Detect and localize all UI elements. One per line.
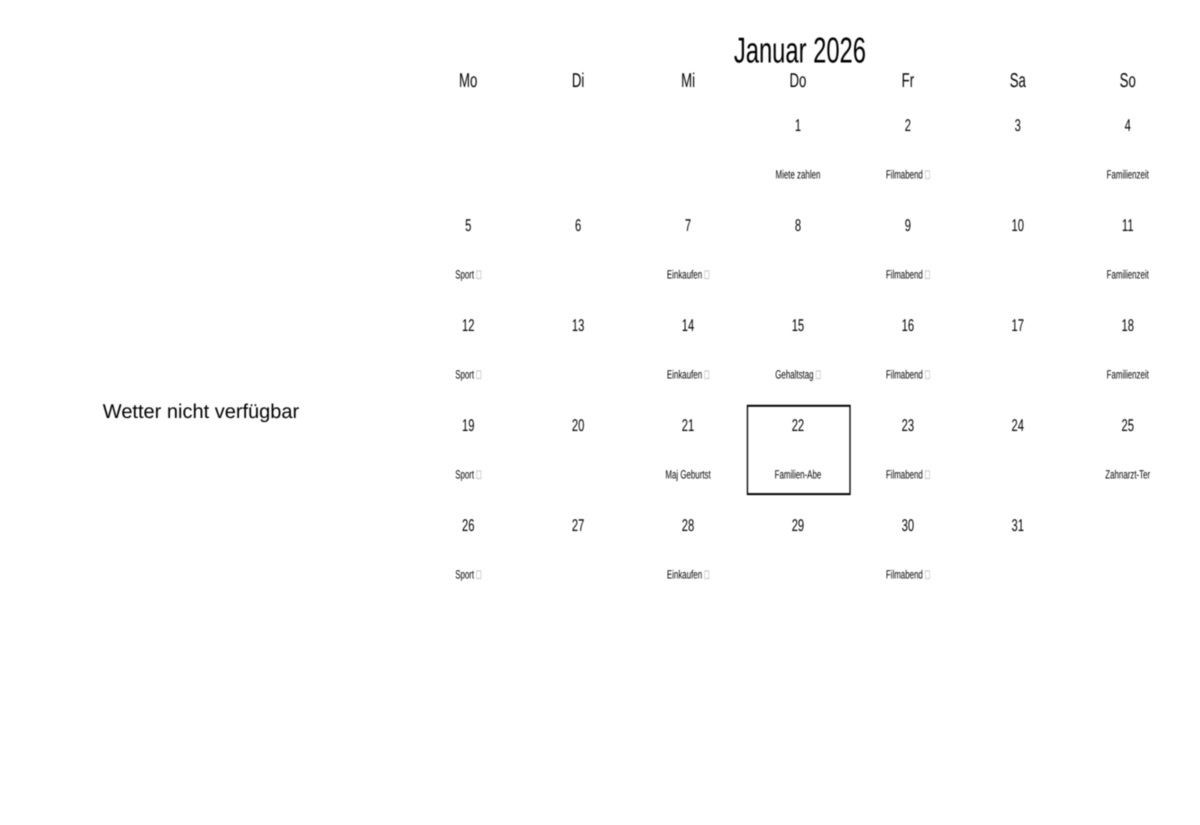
svg-text:9: 9: [905, 216, 911, 235]
svg-text:27: 27: [572, 516, 584, 535]
svg-text:Filmabend: Filmabend: [886, 168, 923, 182]
svg-text:24: 24: [1012, 416, 1024, 435]
svg-text:Sa: Sa: [1010, 70, 1027, 92]
svg-text:Einkaufen: Einkaufen: [667, 268, 702, 282]
svg-text:Sport: Sport: [455, 268, 474, 282]
svg-text:17: 17: [1012, 316, 1024, 335]
svg-text:Familienzeit: Familienzeit: [1107, 368, 1150, 382]
svg-text:Filmabend: Filmabend: [886, 568, 923, 582]
svg-text:Einkaufen: Einkaufen: [667, 568, 702, 582]
svg-text:Filmabend: Filmabend: [886, 468, 923, 482]
svg-text:Familien-Abe: Familien-Abe: [775, 468, 822, 482]
svg-text:26: 26: [462, 516, 474, 535]
svg-text:Filmabend: Filmabend: [886, 368, 923, 382]
svg-text:21: 21: [682, 416, 694, 435]
svg-text:20: 20: [572, 416, 584, 435]
svg-text:4: 4: [1125, 116, 1131, 135]
svg-text:14: 14: [682, 316, 694, 335]
svg-text:13: 13: [572, 316, 584, 335]
svg-text:Sport: Sport: [455, 368, 474, 382]
svg-text:29: 29: [792, 516, 804, 535]
svg-text:10: 10: [1012, 216, 1024, 235]
svg-text:16: 16: [902, 316, 914, 335]
svg-text:Mo: Mo: [459, 70, 477, 92]
svg-text:Familienzeit: Familienzeit: [1107, 168, 1150, 182]
svg-text:28: 28: [682, 516, 694, 535]
svg-text:15: 15: [792, 316, 804, 335]
svg-text:31: 31: [1012, 516, 1024, 535]
svg-text:30: 30: [902, 516, 914, 535]
svg-text:11: 11: [1122, 216, 1134, 235]
svg-text:Di: Di: [572, 70, 584, 92]
svg-text:18: 18: [1121, 316, 1133, 335]
svg-text:Gehaltstag: Gehaltstag: [775, 368, 813, 382]
svg-text:Maj Geburtst: Maj Geburtst: [665, 468, 711, 482]
svg-text:Sport: Sport: [455, 468, 474, 482]
svg-text:3: 3: [1015, 116, 1021, 135]
svg-text:8: 8: [795, 216, 801, 235]
svg-text:Einkaufen: Einkaufen: [667, 368, 702, 382]
svg-text:Zahnarzt-Ter: Zahnarzt-Ter: [1105, 468, 1150, 482]
svg-text:Wetter nicht verfügbar: Wetter nicht verfügbar: [103, 401, 300, 423]
svg-text:So: So: [1120, 70, 1136, 92]
svg-text:25: 25: [1121, 416, 1133, 435]
svg-text:6: 6: [575, 216, 581, 235]
svg-text:Miete zahlen: Miete zahlen: [775, 168, 820, 182]
svg-text:22: 22: [792, 416, 804, 435]
svg-text:Filmabend: Filmabend: [886, 268, 923, 282]
svg-text:7: 7: [685, 216, 691, 235]
svg-text:5: 5: [465, 216, 471, 235]
svg-text:1: 1: [795, 116, 801, 135]
svg-text:Januar 2026: Januar 2026: [734, 30, 866, 71]
svg-text:12: 12: [462, 316, 474, 335]
svg-text:2: 2: [905, 116, 911, 135]
svg-text:19: 19: [462, 416, 474, 435]
svg-text:Fr: Fr: [902, 70, 915, 92]
svg-text:Mi: Mi: [681, 70, 695, 92]
svg-text:23: 23: [902, 416, 914, 435]
svg-text:Sport: Sport: [455, 568, 474, 582]
svg-text:Do: Do: [789, 70, 806, 92]
svg-text:Familienzeit: Familienzeit: [1107, 268, 1150, 282]
